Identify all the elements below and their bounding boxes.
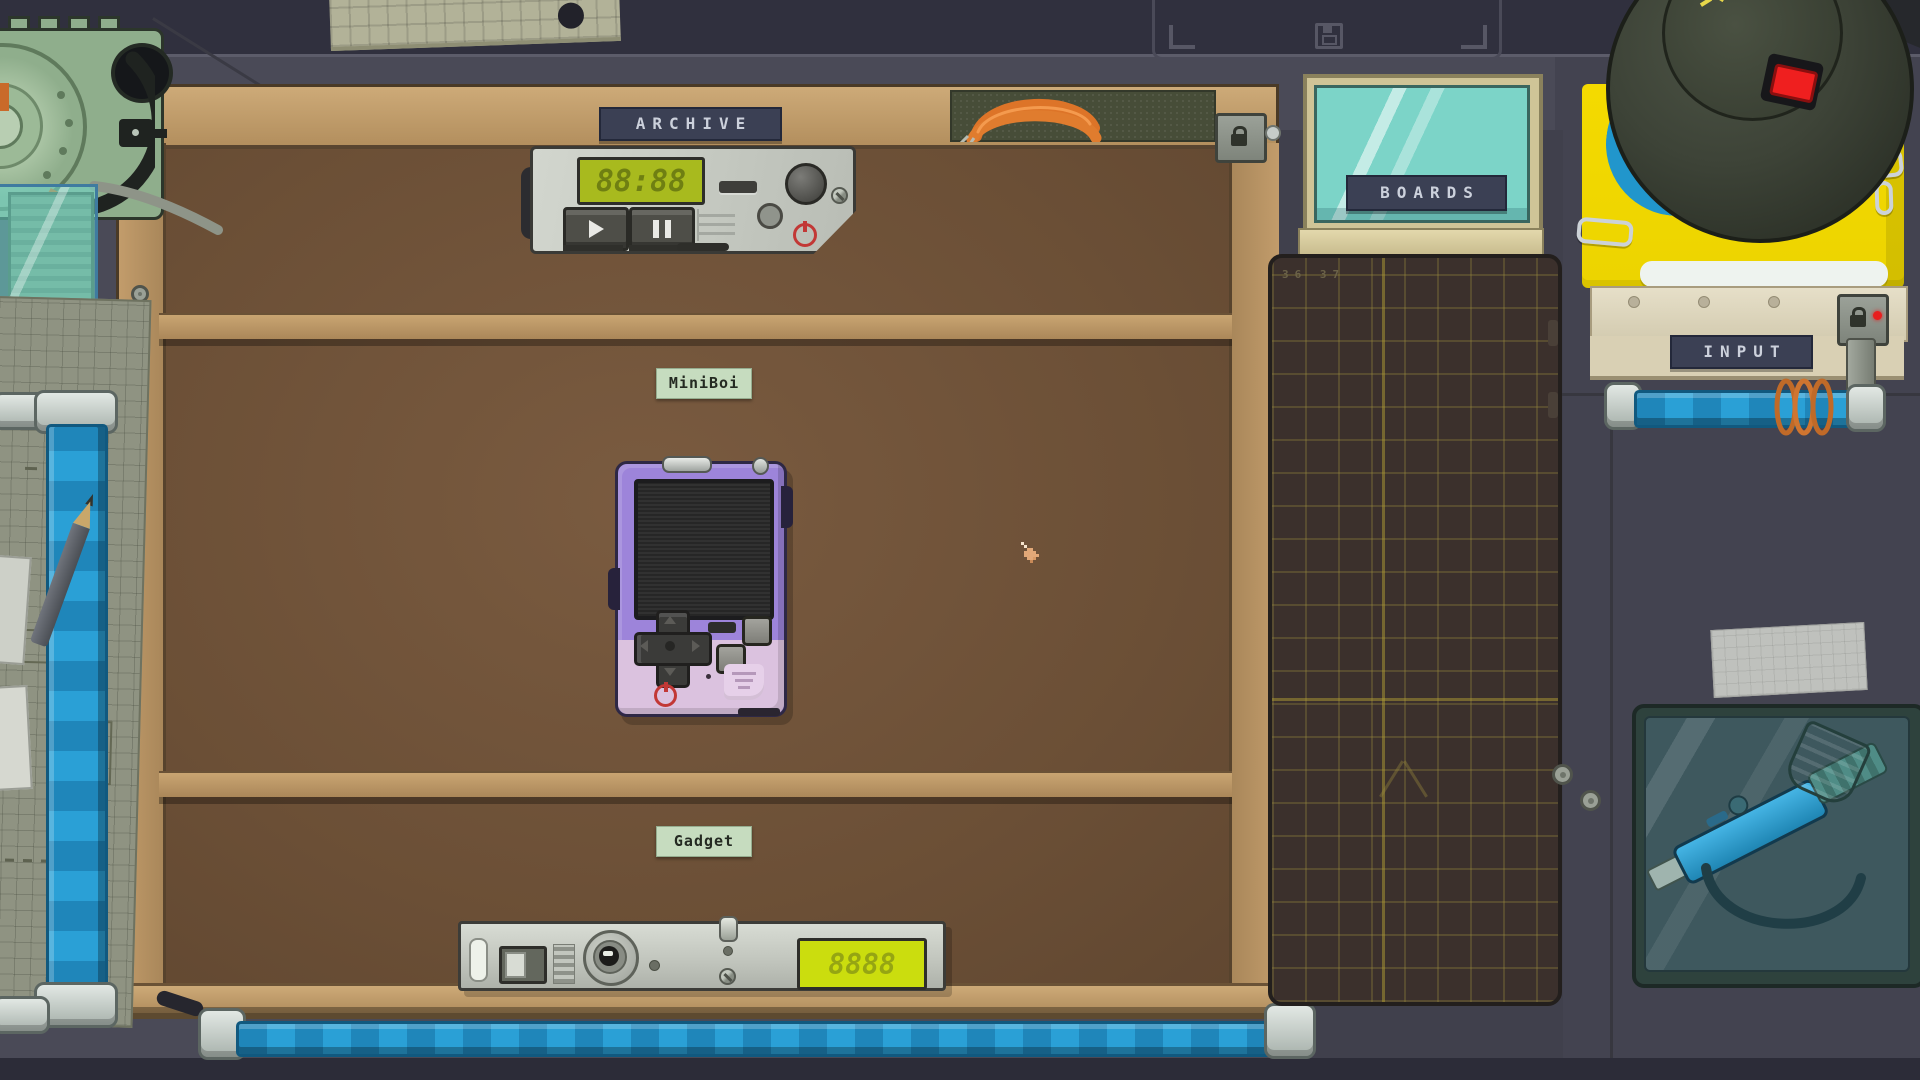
floor-bottom-shadow (0, 1058, 1920, 1080)
shelf-rivet (1628, 296, 1640, 308)
airbrush-case[interactable] (1632, 704, 1920, 988)
jack-hole (599, 946, 619, 966)
cutting-mat: 36 37 (1268, 254, 1562, 1006)
gadget-vent (553, 944, 575, 984)
gadget-lcd: 8888 (797, 938, 927, 990)
desk-divider-2 (159, 771, 1232, 797)
mat-accent-line-v (1382, 258, 1385, 1002)
masking-tape (1710, 622, 1867, 698)
gadget-switch-knob (505, 952, 526, 978)
teal-glass-panel (0, 184, 98, 314)
lock-red-led (1873, 311, 1882, 320)
floppy-icon (1315, 23, 1343, 49)
mat-accent-line-h (1272, 698, 1558, 701)
floor-bolt (1552, 764, 1573, 785)
boards-case[interactable]: BOARDS (1303, 74, 1543, 236)
pipe-elbow (1264, 1003, 1316, 1059)
clamp-head-box (119, 119, 153, 147)
lamp-switch-red-key[interactable] (1769, 63, 1819, 103)
gadget-dot (649, 960, 660, 971)
mat-notch (1548, 392, 1558, 418)
shelf-rivet (1698, 296, 1710, 308)
screw (831, 187, 848, 204)
input-label-badge: INPUT (1670, 335, 1813, 369)
floor-bolt (1580, 790, 1601, 811)
loose-paper (0, 685, 33, 791)
gadget-left-pill (469, 938, 488, 982)
mat-notch (1548, 320, 1558, 346)
archive-label-text: ARCHIVE (636, 116, 752, 132)
slot-corner-bracket-right (1461, 25, 1487, 49)
save-slot-dropzone[interactable] (1152, 0, 1502, 60)
tape-bottom-port (677, 243, 729, 251)
shelf-rivet (1768, 296, 1780, 308)
miniboi-screen (634, 479, 774, 620)
archive-shelf-label: ARCHIVE (599, 107, 782, 141)
power-icon[interactable] (793, 223, 817, 247)
pause-icon-bar (665, 220, 671, 238)
dpad-center-dot (665, 641, 675, 651)
desk-divider-1 (159, 313, 1232, 339)
gadget-slot-sticker: Gadget (656, 826, 752, 857)
speaker-line (738, 686, 750, 689)
screw (719, 968, 736, 985)
clamp-head-dot (132, 129, 139, 136)
gadget-top-clip (719, 916, 738, 942)
jack-glint (603, 951, 613, 956)
boards-label-badge: BOARDS (1346, 175, 1507, 211)
pegboard-hole (557, 2, 584, 29)
speaker-grille (697, 209, 735, 241)
pcb-cable (86, 178, 226, 240)
tape-player[interactable]: 88:88 (530, 146, 856, 254)
tape-lcd-value: 88:88 (596, 164, 686, 199)
mat-ruler-numbers: 36 37 (1282, 268, 1345, 281)
miniboi-slot (708, 622, 736, 633)
tape-slot (719, 181, 757, 193)
tape-player-lcd: 88:88 (577, 157, 705, 205)
workbench-scene: ARCHIVE 88:88 Min (0, 0, 1920, 1080)
pause-icon (653, 220, 659, 238)
miniboi-sticker-text: MiniBoi (669, 376, 739, 391)
miniboi-top-knob[interactable] (752, 457, 769, 475)
archive-desk: ARCHIVE 88:88 Min (116, 84, 1279, 1013)
orange-part (0, 83, 9, 111)
pad-white-strip (1640, 261, 1888, 287)
miniboi-side-button-left[interactable] (608, 568, 620, 610)
desk-shadow (116, 1007, 1273, 1019)
miniboi-bottom-port (738, 708, 780, 716)
miniboi-speaker (724, 664, 764, 700)
a-button[interactable] (742, 616, 772, 646)
gadget-dot (723, 946, 733, 956)
clamp-head-stub (151, 129, 167, 138)
hand-pointer-cursor (1018, 542, 1021, 545)
boards-case-ledge (1298, 228, 1544, 256)
miniboi-device[interactable] (615, 461, 787, 717)
top-mesh-inset (950, 90, 1216, 142)
mic-hole (706, 674, 711, 679)
copper-coil (1768, 374, 1848, 440)
floor-seam-vertical (1610, 395, 1613, 1080)
dpad[interactable] (634, 610, 706, 682)
slot-corner-bracket-left (1169, 25, 1195, 49)
volume-knob[interactable] (785, 163, 827, 205)
miniboi-slot-sticker: MiniBoi (656, 368, 752, 399)
orange-cable (954, 92, 1114, 142)
speaker-line (735, 679, 753, 682)
gadget-device[interactable]: 8888 (458, 921, 946, 991)
archive-lock-plate[interactable] (1215, 113, 1267, 163)
plank-knob (1265, 125, 1281, 141)
gadget-jack-port[interactable] (583, 930, 639, 986)
gadget-sticker-text: Gadget (674, 834, 734, 849)
mat-diagonal-mark (1403, 760, 1428, 797)
under-desk-pipe (236, 1021, 1274, 1057)
padlock-icon (1850, 315, 1866, 327)
gadget-switch[interactable] (499, 946, 547, 984)
miniboi-power-icon[interactable] (654, 684, 677, 707)
paper-clip (1576, 217, 1634, 248)
boards-label-text: BOARDS (1380, 185, 1480, 201)
padlock-icon (1231, 134, 1247, 146)
miniboi-top-pill-button[interactable] (662, 456, 712, 473)
pencil-lead (85, 493, 97, 507)
play-icon (589, 220, 604, 238)
input-label-text: INPUT (1703, 344, 1786, 360)
tape-foot (563, 245, 623, 251)
pipe-elbow (0, 996, 50, 1034)
airbrush-hose (1676, 858, 1886, 958)
miniboi-side-button-right[interactable] (781, 486, 793, 528)
pipe-elbow (1846, 384, 1886, 432)
small-round-button[interactable] (757, 203, 783, 229)
gadget-lcd-value: 8888 (828, 948, 895, 981)
speaker-line (732, 672, 756, 675)
